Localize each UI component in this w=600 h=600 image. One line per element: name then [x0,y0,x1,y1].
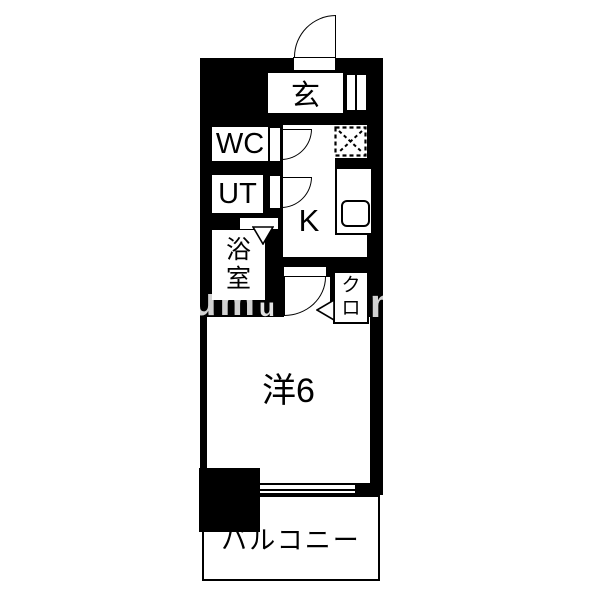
bathroom-door-triangle-icon [252,226,274,245]
washing-machine-space-icon [334,126,367,157]
floor-plan: 玄 WC UT 浴室 K クロ [0,0,600,600]
sink-icon [341,200,370,227]
entrance-door-swing-icon [294,15,336,57]
kitchen-counter [335,167,373,235]
kitchen-label: K [283,203,335,239]
ut-door-leaf [269,175,281,209]
utility-room: UT [210,173,265,215]
toilet-label: WC [216,128,264,161]
closet-door-triangle-icon [316,299,335,321]
entrance-door-leaf [293,57,336,71]
entrance-room: 玄 [266,71,345,115]
main-room-label: 洋6 [207,366,370,408]
window-sash-line [260,489,355,491]
closet-label: クロ [341,275,361,320]
entrance-label: 玄 [291,72,320,114]
toilet-room: WC [210,125,270,163]
utility-label: UT [218,178,257,211]
room-door-leaf [283,266,327,277]
kitchen-front-area [335,235,367,257]
shoe-cabinet-divider [355,75,357,110]
balcony-window [260,483,355,495]
wc-door-leaf [269,127,281,162]
bathroom-label: 浴室 [225,236,252,295]
corner-pillar [199,468,260,532]
closet-room: クロ [333,271,369,324]
